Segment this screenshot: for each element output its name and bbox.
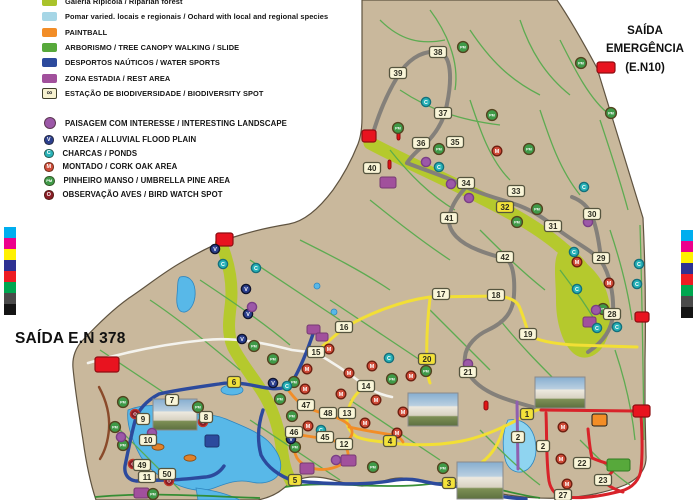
pine-area-marker-label: PM [289, 414, 295, 418]
waypoint-number: 2 [516, 433, 521, 442]
legend-area-row: Galeria Ripícola / Riparian forest [42, 0, 328, 9]
calibration-swatch [681, 230, 693, 241]
legend-area-label: Galeria Ripícola / Riparian forest [65, 0, 183, 6]
pine-area-marker-label: PM [120, 443, 126, 447]
waypoint-number: 8 [204, 413, 209, 422]
landscape-marker [331, 455, 340, 464]
waypoint-number: 4 [388, 437, 393, 446]
pond-marker-label: C [615, 325, 619, 331]
waypoint-number: 49 [138, 461, 147, 470]
calibration-swatch [4, 227, 16, 238]
legend-area-row: ARBORISMO / TREE CANOPY WALKING / SLIDE [42, 40, 328, 55]
paintball-area [592, 414, 607, 426]
legend-point-label: MONTADO / CORK OAK AREA [63, 162, 178, 171]
legend-area-row: ∞ESTAÇÃO DE BIODIVERSIDADE / BIODIVERSIT… [42, 86, 328, 101]
legend-point-label: CHARCAS / PONDS [63, 149, 138, 158]
legend-point-icon: PM [44, 176, 55, 187]
legend-point-row: PAISAGEM COM INTERESSE / INTERESTING LAN… [44, 117, 287, 129]
rest-area [134, 488, 149, 498]
pine-area-marker-label: PM [578, 61, 584, 65]
legend-point-label: PAISAGEM COM INTERESSE / INTERESTING LAN… [65, 119, 287, 128]
legend-area-label: Pomar varied. locais e regionais / Ochar… [65, 12, 328, 21]
pine-area-marker-label: PM [112, 425, 118, 429]
emergency-line-2: EMERGÊNCIA [592, 40, 698, 58]
cork-oak-marker-label: M [306, 424, 311, 430]
calibration-swatch [681, 296, 693, 307]
flood-plain-marker-label: V [240, 337, 244, 343]
deepwater-area [205, 435, 219, 447]
legend-area-label: DESPORTOS NAÚTICOS / WATER SPORTS [65, 58, 220, 67]
legend-area-types: Galeria Ripícola / Riparian forestPomar … [42, 0, 328, 101]
pine-area-marker-label: PM [395, 126, 401, 130]
emergency-line-1: SAÍDA [592, 22, 698, 40]
pine-area-marker-label: PM [436, 147, 442, 151]
arborismo-area [607, 459, 630, 471]
waypoint-number: 39 [394, 69, 403, 78]
pine-area-marker-label: PM [251, 344, 257, 348]
legend-point-icon: V [44, 135, 54, 145]
legend-color-swatch [42, 74, 57, 83]
waypoint-number: 36 [417, 139, 426, 148]
calibration-swatch [681, 285, 693, 296]
waypoint-number: 10 [144, 436, 153, 445]
pine-area-marker-label: PM [150, 492, 156, 496]
cork-oak-marker-label: M [374, 398, 379, 404]
legend-point-icon: M [44, 162, 54, 172]
waypoint-number: 34 [462, 179, 471, 188]
cork-oak-marker-label: M [401, 410, 406, 416]
pond-marker-label: C [254, 266, 258, 272]
legend-point-icon [44, 117, 56, 129]
cork-oak-marker-label: M [565, 482, 570, 488]
pine-area-marker-label: PM [489, 113, 495, 117]
waypoint-number: 23 [599, 476, 608, 485]
waypoint-number: 1 [525, 410, 530, 419]
exit-label-en378: SAÍDA E.N 378 [15, 330, 126, 348]
legend-point-row: PMPINHEIRO MANSO / UMBRELLA PINE AREA [44, 176, 287, 187]
pond-marker-label: C [637, 262, 641, 268]
photo-thumbnail [457, 462, 503, 499]
waypoint-number: 19 [524, 330, 533, 339]
pond-marker-label: C [387, 356, 391, 362]
pine-area-marker-label: PM [514, 220, 520, 224]
waypoint-number: 47 [302, 401, 311, 410]
calibration-swatch [4, 249, 16, 260]
waypoint-number: 20 [423, 355, 432, 364]
flood-plain-marker-label: V [213, 247, 217, 253]
calibration-swatch [681, 263, 693, 274]
legend-color-swatch [42, 58, 57, 67]
legend-color-swatch [42, 43, 57, 52]
calibration-swatch [4, 271, 16, 282]
waypoint-number: 45 [321, 433, 330, 442]
legend-point-types: PAISAGEM COM INTERESSE / INTERESTING LAN… [44, 117, 287, 204]
calibration-swatch [681, 241, 693, 252]
legend-point-row: VVARZEA / ALLUVIAL FLOOD PLAIN [44, 135, 287, 145]
waypoint-number: 50 [163, 470, 172, 479]
exit-marker-icon [362, 130, 376, 142]
rest-area [380, 177, 396, 188]
legend-point-label: VARZEA / ALLUVIAL FLOOD PLAIN [63, 135, 197, 144]
calibration-bar-right [681, 230, 693, 318]
landscape-marker [116, 432, 125, 441]
waypoint-number: 33 [512, 187, 521, 196]
pond-marker-label: C [635, 282, 639, 288]
waypoint-number: 35 [451, 138, 460, 147]
cork-oak-marker-label: M [607, 281, 612, 287]
cork-oak-marker-label: M [305, 367, 310, 373]
waypoint-number: 14 [362, 382, 371, 391]
pine-area-marker-label: PM [389, 377, 395, 381]
waypoint-number: 28 [608, 310, 617, 319]
calibration-swatch [4, 282, 16, 293]
legend-color-swatch [42, 28, 57, 37]
calibration-swatch [4, 260, 16, 271]
calibration-swatch [4, 238, 16, 249]
pine-area-marker-label: PM [440, 466, 446, 470]
waypoint-number: 41 [445, 214, 454, 223]
biodiversity-spot-icon: ∞ [42, 88, 57, 99]
waypoint-number: 42 [501, 253, 510, 262]
landscape-marker [247, 302, 256, 311]
legend-point-icon: O [44, 190, 54, 200]
legend-area-label: PAINTBALL [65, 28, 107, 37]
photo-thumbnail [535, 377, 585, 408]
legend-area-label: ARBORISMO / TREE CANOPY WALKING / SLIDE [65, 43, 239, 52]
pond-marker-label: C [595, 326, 599, 332]
waypoint-number: 38 [434, 48, 443, 57]
legend-color-swatch [42, 12, 57, 21]
pond-marker-label: C [437, 165, 441, 171]
rest-area [300, 463, 314, 474]
cork-oak-marker-label: M [347, 371, 352, 377]
legend-area-row: PAINTBALL [42, 25, 328, 40]
calibration-swatch [4, 293, 16, 304]
pine-area-marker-label: PM [526, 147, 532, 151]
landscape-marker [591, 305, 600, 314]
flood-plain-marker-label: V [271, 381, 275, 387]
waypoint-number: 40 [368, 164, 377, 173]
legend-point-icon: C [44, 149, 54, 159]
redtick-area [388, 160, 391, 169]
pine-area-marker-label: PM [534, 207, 540, 211]
waypoint-number: 7 [170, 396, 175, 405]
cork-oak-marker-label: M [575, 260, 580, 266]
pine-area-marker-label: PM [608, 111, 614, 115]
calibration-swatch [4, 304, 16, 315]
legend-color-swatch [42, 0, 57, 6]
waypoint-number: 27 [559, 491, 568, 500]
flood-plain-marker-label: V [244, 287, 248, 293]
waypoint-number: 6 [232, 378, 237, 387]
waypoint-number: 22 [578, 459, 587, 468]
cork-oak-marker-label: M [339, 392, 344, 398]
legend-point-label: OBSERVAÇÃO AVES / BIRD WATCH SPOT [63, 190, 223, 199]
waypoint-number: 29 [597, 254, 606, 263]
pond-marker-label: C [575, 287, 579, 293]
waypoint-number: 3 [447, 479, 452, 488]
legend-point-row: OOBSERVAÇÃO AVES / BIRD WATCH SPOT [44, 190, 287, 200]
waypoint-number: 15 [312, 348, 321, 357]
pond-marker-label: C [424, 100, 428, 106]
waypoint-number: 48 [324, 409, 333, 418]
cork-oak-marker-label: M [409, 374, 414, 380]
pond-marker-label: C [572, 250, 576, 256]
waypoint-number: 5 [293, 476, 298, 485]
cork-oak-marker-label: M [370, 364, 375, 370]
exit-marker-icon [635, 312, 649, 322]
cork-oak-marker-label: M [559, 457, 564, 463]
calibration-swatch [681, 307, 693, 318]
cork-oak-marker-label: M [561, 425, 566, 431]
legend-area-label: ESTAÇÃO DE BIODIVERSIDADE / BIODIVERSITY… [65, 89, 263, 98]
cork-oak-marker-label: M [327, 347, 332, 353]
legend-area-row: Pomar varied. locais e regionais / Ochar… [42, 9, 328, 24]
rest-area [341, 455, 356, 466]
pine-area-marker-label: PM [423, 369, 429, 373]
photo-thumbnail [408, 393, 458, 426]
flood-plain-marker-label: V [246, 312, 250, 318]
waypoint-number: 21 [464, 368, 473, 377]
calibration-swatch [681, 252, 693, 263]
waypoint-number: 37 [439, 109, 448, 118]
waypoint-number: 18 [492, 291, 501, 300]
pine-area-marker-label: PM [270, 357, 276, 361]
fish-icon [184, 455, 196, 461]
cork-oak-marker-label: M [363, 421, 368, 427]
waypoint-number: 12 [340, 440, 349, 449]
waypoint-number: 46 [290, 428, 299, 437]
pine-area-marker-label: PM [195, 405, 201, 409]
emergency-line-3: (E.N10) [592, 59, 698, 77]
landscape-marker [464, 193, 473, 202]
pine-area-marker-label: PM [370, 465, 376, 469]
pine-area-marker-label: PM [120, 400, 126, 404]
calibration-swatch [681, 274, 693, 285]
park-map-page: PMPMPMPMPMPMPMPMPMPMPMPMPMPMPMPMPMPMPMPM… [0, 0, 700, 500]
pond-marker-label: C [582, 185, 586, 191]
legend-area-row: DESPORTOS NAÚTICOS / WATER SPORTS [42, 55, 328, 70]
legend-area-row: ZONA ESTADIA / REST AREA [42, 70, 328, 85]
pine-area-marker-label: PM [277, 397, 283, 401]
pine-area-marker-label: PM [460, 45, 466, 49]
pond-marker-label: C [285, 384, 289, 390]
legend-point-row: CCHARCAS / PONDS [44, 149, 287, 159]
waypoint-number: 16 [340, 323, 349, 332]
waypoint-number: 2 [541, 442, 546, 451]
exit-marker-icon [95, 357, 119, 372]
exit-marker-icon [633, 405, 650, 417]
pine-area-marker-label: PM [292, 445, 298, 449]
exit-label-emergency: SAÍDA EMERGÊNCIA (E.N10) [592, 22, 698, 77]
waypoint-number: 13 [343, 409, 352, 418]
cork-oak-marker-label: M [495, 149, 500, 155]
waypoint-number: 32 [501, 203, 510, 212]
cork-oak-marker-label: M [303, 387, 308, 393]
waypoint-number: 11 [143, 473, 152, 482]
rest-area [316, 333, 328, 341]
waypoint-number: 31 [549, 222, 558, 231]
landscape-marker [446, 179, 455, 188]
waypoint-number: 30 [588, 210, 597, 219]
redtick-area [484, 401, 488, 410]
landscape-marker [421, 157, 430, 166]
pond-marker-label: C [221, 262, 225, 268]
legend-area-label: ZONA ESTADIA / REST AREA [65, 74, 170, 83]
pine-area-marker-label: PM [291, 380, 297, 384]
legend-point-label: PINHEIRO MANSO / UMBRELLA PINE AREA [64, 176, 231, 185]
waypoint-number: 17 [437, 290, 446, 299]
exit-marker-icon [216, 233, 233, 246]
legend-point-row: MMONTADO / CORK OAK AREA [44, 162, 287, 172]
waypoint-number: 9 [141, 415, 146, 424]
calibration-bar-left [4, 227, 16, 315]
